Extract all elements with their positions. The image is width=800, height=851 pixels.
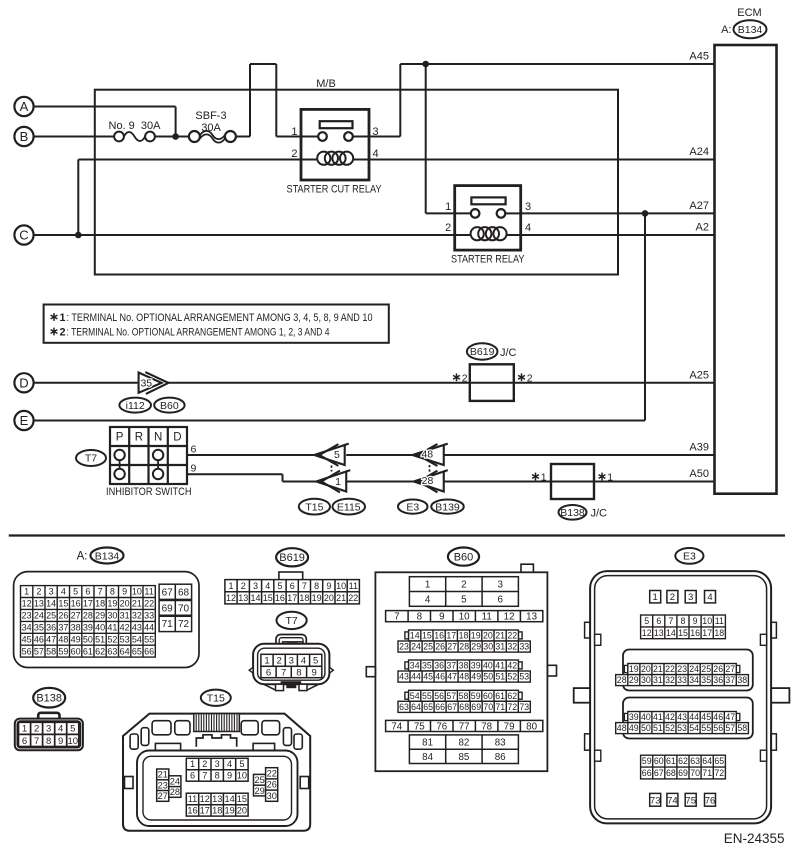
svg-text:3: 3 bbox=[46, 724, 51, 735]
svg-text:38: 38 bbox=[737, 675, 747, 685]
svg-text:No. 9 30A: No. 9 30A bbox=[109, 120, 162, 132]
svg-text:INHIBITOR SWITCH: INHIBITOR SWITCH bbox=[106, 486, 192, 498]
svg-text:18: 18 bbox=[299, 593, 309, 603]
svg-text:: TERMINAL No. OPTIONAL ARRANG: : TERMINAL No. OPTIONAL ARRANGEMENT AMON… bbox=[67, 327, 330, 339]
svg-text:38: 38 bbox=[71, 623, 81, 633]
svg-text:14: 14 bbox=[46, 599, 56, 609]
svg-text:9: 9 bbox=[326, 581, 331, 591]
svg-text:64: 64 bbox=[702, 756, 712, 766]
svg-text:SBF-3: SBF-3 bbox=[195, 110, 226, 122]
svg-text:72: 72 bbox=[178, 619, 190, 630]
svg-text:48: 48 bbox=[58, 634, 68, 644]
svg-text:14: 14 bbox=[666, 628, 676, 638]
svg-text:61: 61 bbox=[666, 756, 676, 766]
svg-text:D: D bbox=[173, 432, 181, 444]
svg-text:54: 54 bbox=[410, 691, 420, 701]
svg-text:A:: A: bbox=[721, 24, 731, 36]
svg-text:28: 28 bbox=[422, 475, 434, 487]
svg-text:82: 82 bbox=[458, 738, 469, 749]
svg-text:: TERMINAL No. OPTIONAL ARRANG: : TERMINAL No. OPTIONAL ARRANGEMENT AMON… bbox=[67, 312, 373, 324]
svg-text:A50: A50 bbox=[689, 468, 709, 480]
svg-text:64: 64 bbox=[411, 702, 421, 712]
svg-text:4: 4 bbox=[707, 592, 712, 603]
svg-text:8: 8 bbox=[314, 581, 319, 591]
svg-text:22: 22 bbox=[665, 664, 675, 674]
svg-text:A:: A: bbox=[77, 551, 88, 563]
svg-text:71: 71 bbox=[162, 619, 174, 630]
svg-text:33: 33 bbox=[519, 642, 529, 652]
svg-text:83: 83 bbox=[495, 738, 506, 749]
svg-text:3: 3 bbox=[253, 581, 258, 591]
svg-text:4: 4 bbox=[58, 724, 63, 735]
svg-text:27: 27 bbox=[71, 611, 81, 621]
svg-text:1: 1 bbox=[541, 472, 547, 484]
svg-text:2: 2 bbox=[462, 373, 468, 385]
svg-text:61: 61 bbox=[495, 691, 505, 701]
svg-text:44: 44 bbox=[144, 623, 154, 633]
svg-text:B134: B134 bbox=[95, 551, 120, 563]
svg-text:20: 20 bbox=[483, 631, 493, 641]
svg-text:68: 68 bbox=[459, 702, 469, 712]
svg-text:20: 20 bbox=[237, 806, 247, 816]
svg-text:42: 42 bbox=[507, 661, 517, 671]
svg-text:52: 52 bbox=[507, 672, 517, 682]
svg-text:J/C: J/C bbox=[591, 508, 608, 520]
svg-text:54: 54 bbox=[132, 634, 142, 644]
svg-text:48: 48 bbox=[617, 723, 627, 733]
svg-text:23: 23 bbox=[158, 780, 168, 790]
svg-text:52: 52 bbox=[107, 634, 117, 644]
svg-text:1: 1 bbox=[264, 656, 269, 667]
svg-text:28: 28 bbox=[459, 642, 469, 652]
svg-text:2: 2 bbox=[34, 724, 39, 735]
svg-text:69: 69 bbox=[471, 702, 481, 712]
svg-text:B139: B139 bbox=[435, 501, 460, 513]
svg-text:E: E bbox=[20, 413, 29, 428]
svg-text:9: 9 bbox=[122, 587, 127, 597]
svg-text:33: 33 bbox=[677, 675, 687, 685]
svg-text:51: 51 bbox=[95, 634, 105, 644]
svg-text:26: 26 bbox=[435, 642, 445, 652]
svg-text:15: 15 bbox=[263, 593, 273, 603]
svg-text:51: 51 bbox=[653, 723, 663, 733]
svg-text:23: 23 bbox=[399, 642, 409, 652]
svg-text:49: 49 bbox=[471, 672, 481, 682]
svg-text:48: 48 bbox=[459, 672, 469, 682]
svg-text:8: 8 bbox=[46, 736, 51, 747]
svg-text:6: 6 bbox=[497, 594, 503, 605]
svg-text:14: 14 bbox=[224, 794, 234, 804]
svg-text:7: 7 bbox=[34, 736, 39, 747]
svg-text:25: 25 bbox=[46, 611, 56, 621]
svg-text:18: 18 bbox=[459, 631, 469, 641]
svg-text:13: 13 bbox=[238, 593, 248, 603]
svg-text:24: 24 bbox=[34, 611, 44, 621]
svg-text:4: 4 bbox=[425, 594, 431, 605]
svg-text:E3: E3 bbox=[683, 551, 696, 563]
svg-text:68: 68 bbox=[666, 768, 676, 778]
svg-text:B60: B60 bbox=[160, 400, 179, 412]
svg-text:78: 78 bbox=[481, 721, 492, 732]
svg-text:18: 18 bbox=[95, 599, 105, 609]
svg-text:1: 1 bbox=[335, 476, 341, 488]
svg-text:11: 11 bbox=[349, 581, 358, 591]
svg-text:55: 55 bbox=[701, 723, 711, 733]
svg-text:32: 32 bbox=[665, 675, 675, 685]
svg-text:30: 30 bbox=[267, 791, 277, 801]
svg-text:13: 13 bbox=[34, 599, 44, 609]
svg-text:65: 65 bbox=[132, 646, 142, 656]
svg-text:22: 22 bbox=[348, 593, 358, 603]
svg-text:46: 46 bbox=[34, 634, 44, 644]
svg-text:R: R bbox=[135, 432, 143, 444]
svg-text:10: 10 bbox=[132, 587, 142, 597]
svg-text:53: 53 bbox=[120, 634, 130, 644]
svg-text:56: 56 bbox=[713, 723, 723, 733]
svg-text:11: 11 bbox=[715, 616, 724, 626]
svg-text:70: 70 bbox=[690, 768, 700, 778]
svg-text:28: 28 bbox=[170, 787, 180, 797]
svg-text:17: 17 bbox=[200, 806, 210, 816]
svg-text:65: 65 bbox=[423, 702, 433, 712]
svg-text:6: 6 bbox=[190, 771, 195, 781]
svg-text:E3: E3 bbox=[406, 501, 419, 513]
svg-text:A39: A39 bbox=[689, 442, 709, 454]
svg-text:73: 73 bbox=[519, 702, 529, 712]
svg-text:11: 11 bbox=[144, 587, 153, 597]
svg-text:27: 27 bbox=[158, 791, 168, 801]
svg-text:69: 69 bbox=[162, 603, 174, 614]
svg-text:73: 73 bbox=[650, 795, 661, 806]
svg-text:i112: i112 bbox=[126, 400, 145, 412]
svg-text:79: 79 bbox=[504, 721, 515, 732]
svg-text:5: 5 bbox=[277, 581, 282, 591]
svg-text:44: 44 bbox=[411, 672, 421, 682]
svg-text:2: 2 bbox=[527, 373, 533, 385]
svg-text:55: 55 bbox=[144, 634, 154, 644]
svg-text:10: 10 bbox=[68, 736, 79, 747]
svg-text:4: 4 bbox=[525, 222, 531, 234]
svg-text:3: 3 bbox=[289, 656, 294, 667]
svg-text:3: 3 bbox=[215, 759, 220, 769]
svg-text:29: 29 bbox=[254, 786, 264, 796]
svg-text:1: 1 bbox=[228, 581, 233, 591]
svg-text:74: 74 bbox=[391, 721, 402, 732]
svg-text:18: 18 bbox=[714, 628, 724, 638]
svg-text:8: 8 bbox=[417, 612, 423, 623]
svg-text:33: 33 bbox=[144, 611, 154, 621]
svg-text:84: 84 bbox=[422, 752, 433, 763]
svg-text:9: 9 bbox=[439, 612, 444, 623]
svg-text:45: 45 bbox=[22, 634, 32, 644]
svg-text:1: 1 bbox=[190, 759, 195, 769]
svg-text:47: 47 bbox=[46, 634, 56, 644]
svg-text:2: 2 bbox=[461, 580, 466, 591]
svg-text:9: 9 bbox=[191, 463, 197, 475]
svg-text:40: 40 bbox=[641, 712, 651, 722]
svg-text:A45: A45 bbox=[689, 51, 709, 63]
svg-text:19: 19 bbox=[471, 631, 481, 641]
svg-text:B: B bbox=[20, 129, 29, 144]
svg-text:A24: A24 bbox=[689, 146, 709, 158]
svg-text:19: 19 bbox=[312, 593, 322, 603]
svg-text:43: 43 bbox=[677, 712, 687, 722]
svg-text:55: 55 bbox=[422, 691, 432, 701]
svg-text:T7: T7 bbox=[285, 615, 297, 627]
svg-text:6: 6 bbox=[22, 736, 27, 747]
svg-text:46: 46 bbox=[713, 712, 723, 722]
svg-text:25: 25 bbox=[254, 775, 264, 785]
svg-text:63: 63 bbox=[107, 646, 117, 656]
svg-text:6: 6 bbox=[290, 581, 295, 591]
svg-text:1: 1 bbox=[60, 312, 66, 324]
svg-text:T15: T15 bbox=[305, 501, 323, 513]
svg-text:31: 31 bbox=[120, 611, 130, 621]
svg-text:50: 50 bbox=[641, 723, 651, 733]
svg-text:3: 3 bbox=[525, 201, 531, 213]
svg-text:41: 41 bbox=[107, 623, 117, 633]
svg-text:75: 75 bbox=[414, 721, 425, 732]
svg-text:8: 8 bbox=[681, 616, 686, 626]
svg-text:59: 59 bbox=[642, 756, 652, 766]
svg-text:B619: B619 bbox=[279, 552, 305, 564]
svg-text:37: 37 bbox=[725, 675, 735, 685]
svg-text:9: 9 bbox=[227, 771, 232, 781]
svg-text:66: 66 bbox=[435, 702, 445, 712]
svg-text:61: 61 bbox=[83, 646, 93, 656]
svg-text:49: 49 bbox=[629, 723, 639, 733]
svg-text:17: 17 bbox=[702, 628, 712, 638]
svg-text:A25: A25 bbox=[689, 369, 709, 381]
svg-text:30: 30 bbox=[641, 675, 651, 685]
svg-text:22: 22 bbox=[144, 599, 154, 609]
svg-text:12: 12 bbox=[200, 794, 210, 804]
svg-text:14: 14 bbox=[250, 593, 260, 603]
svg-text:26: 26 bbox=[713, 664, 723, 674]
svg-text:E115: E115 bbox=[337, 501, 361, 513]
svg-text:5: 5 bbox=[644, 616, 649, 626]
svg-text:54: 54 bbox=[689, 723, 699, 733]
svg-text:13: 13 bbox=[654, 628, 664, 638]
svg-text:53: 53 bbox=[519, 672, 529, 682]
svg-text:11: 11 bbox=[482, 612, 492, 623]
svg-text:15: 15 bbox=[678, 628, 688, 638]
svg-text:21: 21 bbox=[495, 631, 505, 641]
svg-text:21: 21 bbox=[132, 599, 142, 609]
svg-text:6: 6 bbox=[266, 667, 271, 678]
svg-text:6: 6 bbox=[85, 587, 90, 597]
svg-text:5: 5 bbox=[334, 449, 340, 461]
svg-text:18: 18 bbox=[212, 806, 222, 816]
svg-text:22: 22 bbox=[507, 631, 517, 641]
svg-text:1: 1 bbox=[607, 472, 613, 484]
svg-text:74: 74 bbox=[667, 795, 678, 806]
svg-text:10: 10 bbox=[459, 612, 470, 623]
svg-text:75: 75 bbox=[685, 795, 696, 806]
svg-text:71: 71 bbox=[702, 768, 712, 778]
svg-text:24: 24 bbox=[170, 776, 180, 786]
svg-text:29: 29 bbox=[629, 675, 639, 685]
svg-text:70: 70 bbox=[483, 702, 493, 712]
svg-text:44: 44 bbox=[689, 712, 699, 722]
svg-text:25: 25 bbox=[701, 664, 711, 674]
svg-text:B134: B134 bbox=[738, 24, 763, 36]
svg-text:16: 16 bbox=[434, 631, 444, 641]
svg-text:59: 59 bbox=[471, 691, 481, 701]
svg-text:4: 4 bbox=[301, 656, 306, 667]
svg-text:15: 15 bbox=[237, 794, 247, 804]
svg-text:12: 12 bbox=[642, 628, 652, 638]
svg-text:17: 17 bbox=[446, 631, 456, 641]
svg-text:36: 36 bbox=[434, 661, 444, 671]
svg-text:20: 20 bbox=[324, 593, 334, 603]
svg-text:8: 8 bbox=[215, 771, 220, 781]
svg-text:B138: B138 bbox=[36, 693, 62, 705]
svg-text:J/C: J/C bbox=[500, 347, 517, 359]
svg-text:ECM: ECM bbox=[737, 7, 761, 19]
svg-text:63: 63 bbox=[690, 756, 700, 766]
svg-text:7: 7 bbox=[202, 771, 207, 781]
svg-text:32: 32 bbox=[507, 642, 517, 652]
svg-text:47: 47 bbox=[447, 672, 457, 682]
svg-text:21: 21 bbox=[653, 664, 663, 674]
svg-text:16: 16 bbox=[275, 593, 285, 603]
svg-text:5: 5 bbox=[70, 724, 75, 735]
svg-text:22: 22 bbox=[267, 769, 277, 779]
svg-text:39: 39 bbox=[83, 623, 93, 633]
svg-text:60: 60 bbox=[654, 756, 664, 766]
svg-text:57: 57 bbox=[34, 646, 44, 656]
svg-text:9: 9 bbox=[312, 667, 317, 678]
svg-text:41: 41 bbox=[495, 661, 505, 671]
svg-text:40: 40 bbox=[483, 661, 493, 671]
svg-text:7: 7 bbox=[302, 581, 307, 591]
svg-text:39: 39 bbox=[629, 712, 639, 722]
svg-text:20: 20 bbox=[120, 599, 130, 609]
svg-text:31: 31 bbox=[653, 675, 663, 685]
svg-text:38: 38 bbox=[459, 661, 469, 671]
svg-text:19: 19 bbox=[224, 806, 234, 816]
svg-text:56: 56 bbox=[22, 646, 32, 656]
svg-text:34: 34 bbox=[22, 623, 32, 633]
svg-text:2: 2 bbox=[291, 148, 297, 160]
svg-text:4: 4 bbox=[227, 759, 232, 769]
svg-text:76: 76 bbox=[436, 721, 447, 732]
svg-text:1: 1 bbox=[24, 587, 29, 597]
svg-text:5: 5 bbox=[73, 587, 78, 597]
svg-text:16: 16 bbox=[187, 806, 197, 816]
svg-text:10: 10 bbox=[237, 771, 247, 781]
svg-text:M/B: M/B bbox=[316, 78, 336, 90]
svg-text:30: 30 bbox=[107, 611, 117, 621]
svg-text:47: 47 bbox=[725, 712, 735, 722]
svg-text:5: 5 bbox=[239, 759, 244, 769]
svg-text:2: 2 bbox=[445, 222, 451, 234]
svg-text:27: 27 bbox=[725, 664, 735, 674]
svg-text:6: 6 bbox=[191, 444, 197, 456]
svg-text:70: 70 bbox=[178, 603, 190, 614]
svg-text:34: 34 bbox=[689, 675, 699, 685]
svg-text:67: 67 bbox=[447, 702, 457, 712]
svg-text:3: 3 bbox=[688, 592, 693, 603]
svg-text:2: 2 bbox=[202, 759, 207, 769]
svg-text:14: 14 bbox=[410, 631, 420, 641]
svg-text:30: 30 bbox=[483, 642, 493, 652]
svg-text:1: 1 bbox=[22, 724, 27, 735]
svg-text:3: 3 bbox=[49, 587, 54, 597]
svg-text:1: 1 bbox=[653, 592, 658, 603]
svg-text:32: 32 bbox=[132, 611, 142, 621]
svg-text:13: 13 bbox=[526, 612, 537, 623]
svg-text:C: C bbox=[19, 228, 28, 243]
svg-text:57: 57 bbox=[446, 691, 456, 701]
svg-text:62: 62 bbox=[95, 646, 105, 656]
svg-text:37: 37 bbox=[58, 623, 68, 633]
svg-text:6: 6 bbox=[656, 616, 661, 626]
svg-text:66: 66 bbox=[642, 768, 652, 778]
svg-text:12: 12 bbox=[22, 599, 32, 609]
svg-text:9: 9 bbox=[58, 736, 63, 747]
svg-text:10: 10 bbox=[702, 616, 712, 626]
svg-text:85: 85 bbox=[458, 752, 469, 763]
svg-text:27: 27 bbox=[447, 642, 457, 652]
svg-text:12: 12 bbox=[226, 593, 236, 603]
svg-text:24: 24 bbox=[411, 642, 421, 652]
svg-text:STARTER CUT RELAY: STARTER CUT RELAY bbox=[287, 184, 382, 196]
svg-text:50: 50 bbox=[83, 634, 93, 644]
svg-text:A2: A2 bbox=[696, 222, 709, 234]
svg-text:7: 7 bbox=[281, 667, 286, 678]
svg-text:35: 35 bbox=[422, 661, 432, 671]
svg-text:30A: 30A bbox=[201, 122, 221, 134]
svg-text:23: 23 bbox=[677, 664, 687, 674]
svg-text:52: 52 bbox=[665, 723, 675, 733]
svg-text:37: 37 bbox=[446, 661, 456, 671]
svg-text:58: 58 bbox=[459, 691, 469, 701]
svg-text:72: 72 bbox=[714, 768, 724, 778]
svg-text:8: 8 bbox=[110, 587, 115, 597]
svg-text:EN-24355: EN-24355 bbox=[724, 831, 785, 846]
svg-text:B619: B619 bbox=[470, 346, 495, 358]
svg-text:B138: B138 bbox=[560, 507, 585, 519]
svg-text:66: 66 bbox=[144, 646, 154, 656]
svg-text:1: 1 bbox=[425, 580, 430, 591]
svg-text:19: 19 bbox=[107, 599, 117, 609]
svg-text:72: 72 bbox=[507, 702, 517, 712]
svg-text:4: 4 bbox=[61, 587, 66, 597]
svg-text:5: 5 bbox=[313, 656, 318, 667]
svg-text:67: 67 bbox=[654, 768, 664, 778]
svg-text:35: 35 bbox=[140, 378, 152, 390]
svg-text:40: 40 bbox=[95, 623, 105, 633]
svg-text:21: 21 bbox=[336, 593, 346, 603]
svg-text:B60: B60 bbox=[454, 551, 474, 563]
svg-text:62: 62 bbox=[507, 691, 517, 701]
svg-text:A27: A27 bbox=[689, 200, 709, 212]
svg-text:71: 71 bbox=[495, 702, 505, 712]
svg-text:2: 2 bbox=[60, 327, 66, 339]
svg-text:2: 2 bbox=[241, 581, 246, 591]
svg-text:42: 42 bbox=[120, 623, 130, 633]
svg-text:13: 13 bbox=[212, 794, 222, 804]
svg-text:31: 31 bbox=[495, 642, 505, 652]
svg-text:16: 16 bbox=[71, 599, 81, 609]
svg-text:36: 36 bbox=[46, 623, 56, 633]
svg-text:21: 21 bbox=[158, 770, 168, 780]
svg-text:9: 9 bbox=[693, 616, 698, 626]
svg-text:45: 45 bbox=[423, 672, 433, 682]
svg-text:34: 34 bbox=[410, 661, 420, 671]
